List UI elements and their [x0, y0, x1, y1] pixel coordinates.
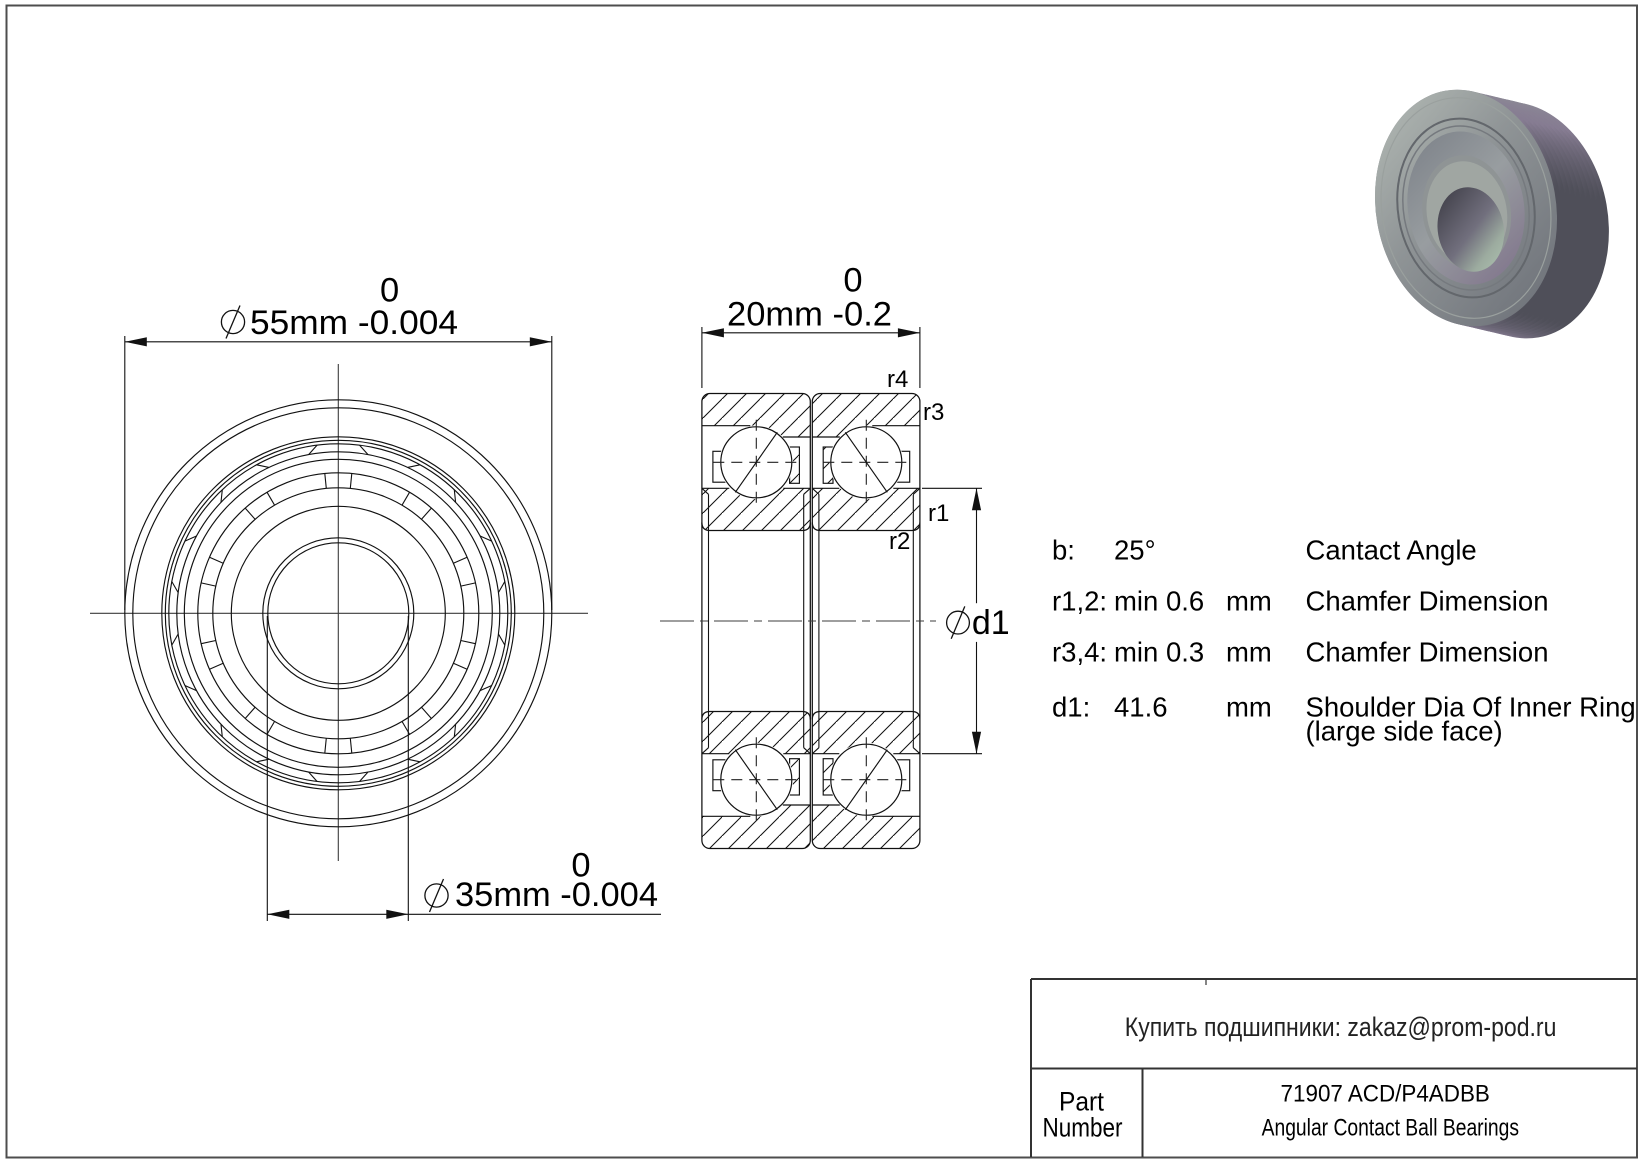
svg-text:mm: mm: [1226, 637, 1272, 668]
svg-text:r3: r3: [923, 399, 944, 426]
svg-text:Number: Number: [1043, 1113, 1123, 1143]
svg-text:d1:: d1:: [1052, 692, 1090, 723]
svg-text:mm: mm: [1226, 586, 1272, 617]
svg-text:71907 ACD/P4ADBB: 71907 ACD/P4ADBB: [1281, 1081, 1490, 1108]
svg-text:0: 0: [843, 261, 862, 299]
svg-text:min 0.6: min 0.6: [1114, 586, 1204, 617]
svg-text:20mm -0.2: 20mm -0.2: [727, 296, 892, 334]
svg-text:(large side face): (large side face): [1306, 716, 1503, 747]
svg-text:Cantact Angle: Cantact Angle: [1306, 534, 1477, 565]
svg-text:min 0.3: min 0.3: [1114, 637, 1204, 668]
svg-text:25°: 25°: [1114, 534, 1156, 565]
svg-text:mm: mm: [1226, 692, 1272, 723]
svg-text:Angular Contact Ball Bearings: Angular Contact Ball Bearings: [1262, 1115, 1519, 1142]
svg-text:55mm -0.004: 55mm -0.004: [250, 304, 458, 342]
svg-text:Купить подшипники: zakaz@prom-: Купить подшипники: zakaz@prom-pod.ru: [1125, 1012, 1557, 1042]
svg-text:r3,4:: r3,4:: [1052, 637, 1107, 668]
svg-text:Chamfer Dimension: Chamfer Dimension: [1306, 637, 1549, 668]
svg-text:r1,2:: r1,2:: [1052, 586, 1107, 617]
svg-text:Chamfer Dimension: Chamfer Dimension: [1306, 586, 1549, 617]
svg-text:r2: r2: [889, 528, 910, 555]
svg-text:b:: b:: [1052, 534, 1075, 565]
svg-text:35mm -0.004: 35mm -0.004: [455, 876, 658, 914]
svg-text:41.6: 41.6: [1114, 692, 1168, 723]
svg-text:r4: r4: [887, 366, 908, 393]
svg-text:r1: r1: [928, 500, 949, 527]
svg-text:d1: d1: [972, 604, 1010, 642]
